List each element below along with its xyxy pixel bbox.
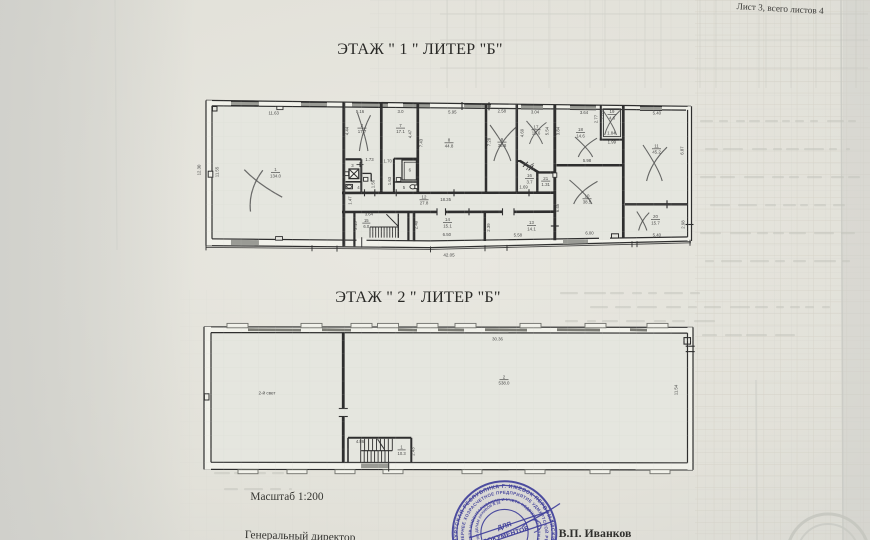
svg-text:Генеральный директор: Генеральный директор <box>245 529 356 540</box>
svg-text:ЭТАЖ " 1 " ЛИТЕР "Б": ЭТАЖ " 1 " ЛИТЕР "Б" <box>337 40 502 58</box>
svg-text:В.П. Иванков: В.П. Иванков <box>559 526 632 540</box>
svg-text:12.30: 12.30 <box>196 164 201 175</box>
svg-text:Масштаб 1:200: Масштаб 1:200 <box>250 491 324 503</box>
svg-text:ЭТАЖ " 2 " ЛИТЕР "Б": ЭТАЖ " 2 " ЛИТЕР "Б" <box>335 288 500 306</box>
svg-text:42.05: 42.05 <box>443 252 455 257</box>
